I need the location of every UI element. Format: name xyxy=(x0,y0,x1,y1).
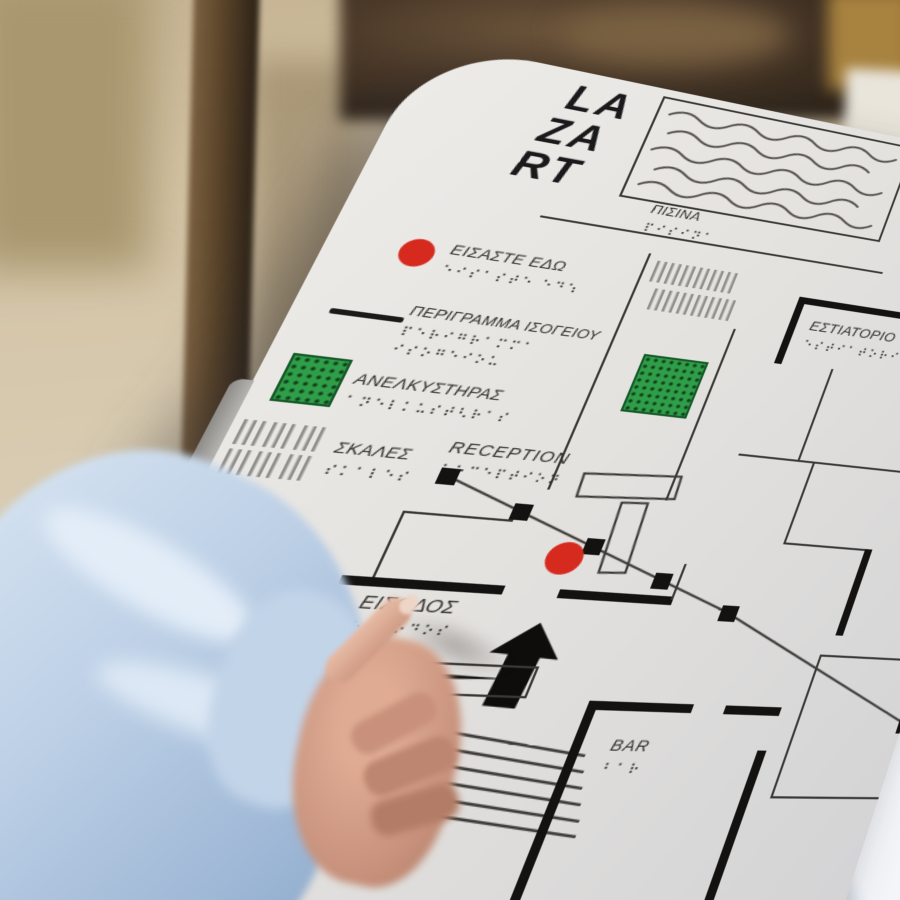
wall-line xyxy=(738,453,900,481)
braille-text: ⠃⠁⠗ xyxy=(598,761,674,780)
wall-line xyxy=(371,511,406,581)
stairs-hatch-cell xyxy=(277,454,313,481)
background-wall-shadow xyxy=(0,0,150,270)
map-stairs xyxy=(638,261,743,321)
entrance-wall xyxy=(557,589,675,605)
wall-line xyxy=(797,369,834,462)
wall-line xyxy=(783,542,869,551)
map-elevator xyxy=(620,354,709,419)
legend-elevator-icon xyxy=(269,353,353,407)
braille-text: ⠑⠊⠎⠁⠎⠞⠑ ⠑⠙⠱ xyxy=(437,263,612,303)
legend-item-elevator: ΑΝΕΛΚΥΣΤΗΡΑΣ ⠁⠝⠑⠇⠅⠥⠎⠞⠣⠗⠁⠎ xyxy=(340,370,549,431)
legend-item-outline: ΠΕΡΙΓΡΑΜΜΑ ΙΣΟΓΕΙΟΥ ⠏⠑⠗⠊⠛⠗⠁⠍⠍⠁ ⠊⠎⠕⠛⠑⠊⠕⠥ xyxy=(388,302,644,387)
photo-scene: { "sign": { "logo_lines": ["LA", "ZA", "… xyxy=(0,0,900,900)
legend-outline-icon xyxy=(328,308,404,323)
reception-desk xyxy=(575,472,683,500)
wall-line xyxy=(783,463,815,544)
you-are-here-dot xyxy=(539,541,589,576)
stairs-hatch-cell xyxy=(292,425,328,452)
legend-you-are-here-icon xyxy=(393,237,441,269)
side-room xyxy=(770,654,900,799)
legend-item-you-are-here: ΕΙΣΑΣΤΕ ΕΔΩ ⠑⠊⠎⠁⠎⠞⠑ ⠑⠙⠱ xyxy=(437,241,621,303)
leather-bench-highlight xyxy=(560,5,790,65)
legend-stairs-icon xyxy=(217,419,328,481)
restaurant-wall xyxy=(774,297,807,364)
restaurant-label-block: ΕΣΤΙΑΤΟΡΙΟ ⠑⠎⠞⠊⠁⠞⠕⠗⠊⠕ xyxy=(800,318,900,373)
stairs-hatch-block xyxy=(647,288,741,321)
wall-line xyxy=(671,564,687,600)
interior-wall xyxy=(835,549,872,636)
bar-wall xyxy=(723,705,782,716)
wall-line xyxy=(402,511,513,522)
entrance-wall xyxy=(338,575,506,595)
map-label: BAR xyxy=(608,736,653,755)
bar-label-block: BAR ⠃⠁⠗ xyxy=(598,736,709,780)
legend-label: ΣΚΑΛΕΣ xyxy=(331,438,415,463)
